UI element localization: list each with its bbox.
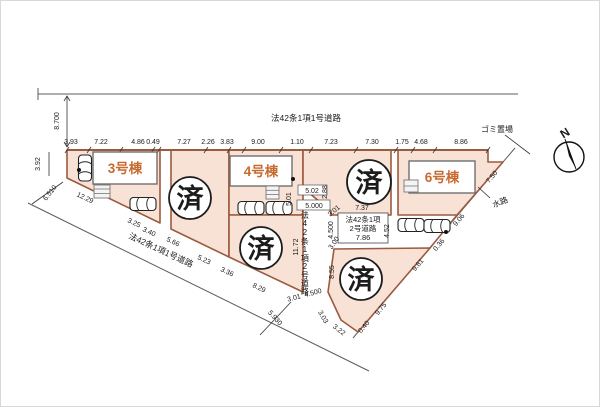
building6-label: 6号棟 — [425, 169, 460, 185]
svg-text:8.55: 8.55 — [329, 265, 336, 279]
sold-mark-4: 済 — [348, 264, 376, 295]
svg-text:5.01: 5.01 — [286, 192, 293, 206]
branch-road-width: 7.86 — [356, 233, 371, 242]
sold-mark-1: 済 — [177, 183, 205, 214]
svg-text:0.49: 0.49 — [146, 139, 160, 146]
sold-mark-3: 済 — [356, 167, 384, 198]
svg-text:3.03: 3.03 — [316, 310, 329, 325]
compass-circle — [554, 142, 584, 172]
svg-text:5.000: 5.000 — [305, 203, 323, 210]
branch-road-line2: 2号道路 — [350, 223, 377, 233]
svg-text:4.68: 4.68 — [414, 139, 428, 146]
car-icon — [238, 202, 264, 215]
north-road-label: 法42条1項1号道路 — [271, 113, 341, 123]
svg-text:5.02: 5.02 — [305, 188, 319, 195]
svg-text:4.500: 4.500 — [328, 221, 335, 239]
building3-label: 3号棟 — [108, 160, 143, 176]
svg-text:1.75: 1.75 — [395, 139, 409, 146]
svg-text:7.23: 7.23 — [324, 139, 338, 146]
site-plan-drawing: 済 済 済 済 3号棟 4号棟 6号棟 法42条1項1号道路 法42条1項1号道… — [1, 1, 600, 407]
svg-text:4.86: 4.86 — [131, 139, 145, 146]
svg-text:3.25: 3.25 — [126, 217, 141, 229]
waterway-label: 水路 — [491, 194, 510, 209]
compass-north-label: N — [558, 125, 573, 141]
west-dimensions: 8.700 3.92 6.510 — [35, 112, 61, 202]
svg-text:1.10: 1.10 — [290, 139, 304, 146]
top-dimensions: 3.93 7.22 4.86 0.49 7.27 2.26 3.83 9.00 … — [64, 139, 468, 146]
svg-text:11.72: 11.72 — [293, 238, 300, 255]
garbage-area-label: ゴミ置場 — [481, 124, 513, 134]
svg-text:7.30: 7.30 — [365, 139, 379, 146]
svg-text:4.52: 4.52 — [384, 224, 391, 238]
svg-text:9.00: 9.00 — [251, 139, 265, 146]
svg-text:3.92: 3.92 — [35, 157, 42, 171]
svg-text:7.22: 7.22 — [94, 139, 108, 146]
svg-text:0.36: 0.36 — [432, 238, 446, 253]
svg-text:3.93: 3.93 — [64, 139, 78, 146]
car-icon — [79, 155, 92, 181]
car-icon — [130, 198, 156, 211]
sold-mark-2: 済 — [248, 233, 276, 264]
svg-text:5.23: 5.23 — [196, 254, 211, 266]
site-plan-canvas: 済 済 済 済 3号棟 4号棟 6号棟 法42条1項1号道路 法42条1項1号道… — [0, 0, 600, 407]
svg-text:3.22: 3.22 — [331, 323, 346, 337]
center-road-vertical-label: 法42条1項2号道路 — [300, 211, 308, 295]
svg-text:8.700: 8.700 — [54, 112, 61, 130]
branch-road-line1: 法42条1項 — [345, 214, 381, 224]
svg-text:8.86: 8.86 — [454, 139, 468, 146]
svg-text:6.510: 6.510 — [42, 184, 58, 202]
svg-text:3.83: 3.83 — [220, 139, 234, 146]
svg-text:12.29: 12.29 — [75, 192, 94, 206]
road-exit-dimensions: 3.01 4.500 5.930 — [266, 288, 322, 327]
svg-text:3.36: 3.36 — [219, 266, 234, 278]
compass: N — [554, 125, 584, 172]
svg-text:7.37: 7.37 — [355, 205, 369, 212]
svg-text:7.27: 7.27 — [177, 139, 191, 146]
building4-label: 4号棟 — [244, 163, 279, 179]
car-icon — [398, 219, 424, 232]
svg-text:2.88: 2.88 — [322, 185, 329, 199]
svg-text:2.26: 2.26 — [201, 139, 215, 146]
svg-text:8.29: 8.29 — [251, 282, 266, 294]
